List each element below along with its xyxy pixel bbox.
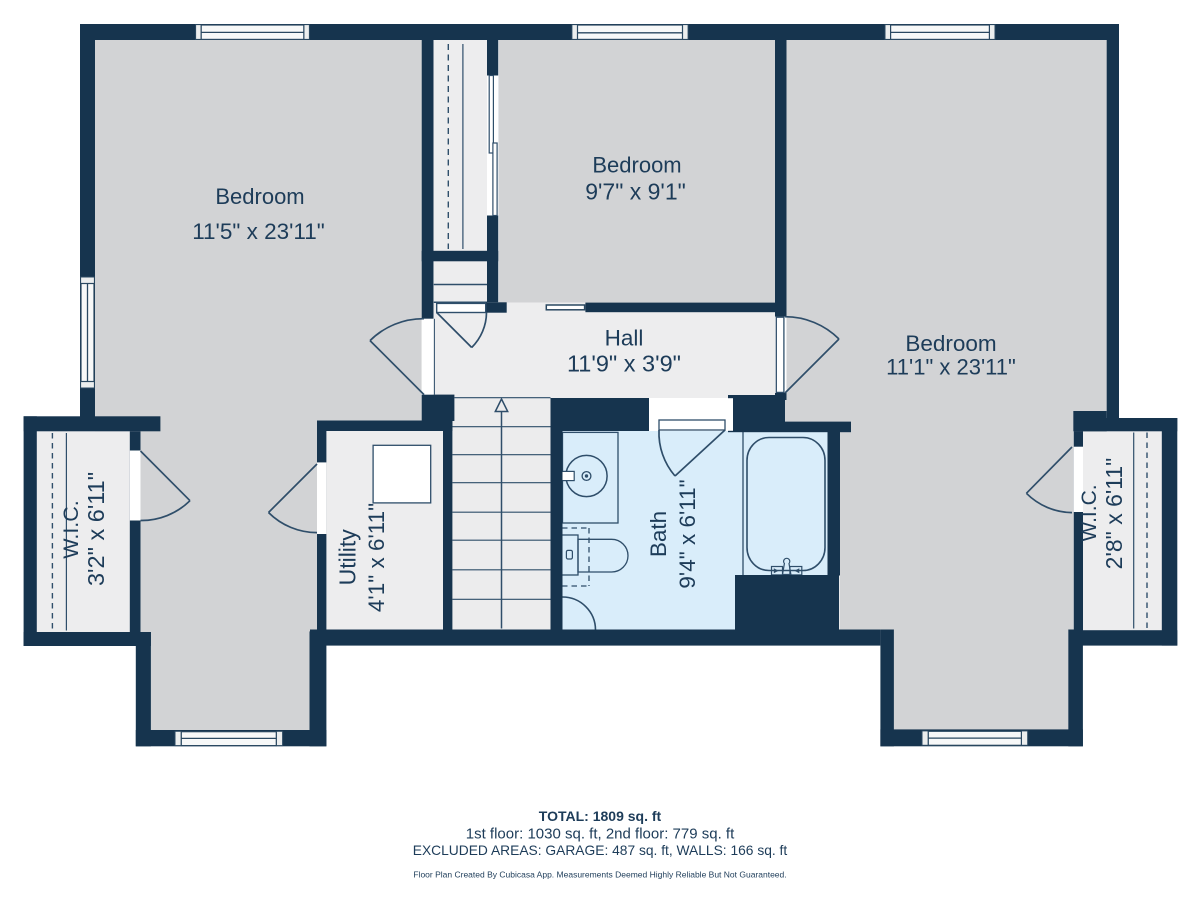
svg-text:3'2" x 6'11": 3'2" x 6'11" — [83, 472, 109, 586]
svg-text:1st floor: 1030 sq. ft, 2nd fl: 1st floor: 1030 sq. ft, 2nd floor: 779 s… — [466, 826, 735, 843]
svg-text:EXCLUDED AREAS: GARAGE: 487 sq: EXCLUDED AREAS: GARAGE: 487 sq. ft, WALL… — [413, 843, 788, 858]
svg-text:2'8" x 6'11": 2'8" x 6'11" — [1101, 458, 1127, 570]
svg-text:11'5" x 23'11": 11'5" x 23'11" — [192, 219, 325, 244]
svg-text:11'9" x 3'9": 11'9" x 3'9" — [567, 351, 681, 377]
svg-text:W.I.C.: W.I.C. — [1078, 484, 1101, 541]
svg-text:4'1" x 6'11": 4'1" x 6'11" — [364, 503, 389, 612]
svg-text:W.I.C.: W.I.C. — [59, 500, 83, 559]
svg-text:Bedroom: Bedroom — [905, 331, 996, 356]
svg-text:Hall: Hall — [605, 326, 644, 351]
svg-text:Floor Plan Created By Cubicasa: Floor Plan Created By Cubicasa App. Meas… — [413, 870, 786, 880]
svg-text:11'1" x 23'11": 11'1" x 23'11" — [886, 355, 1016, 380]
svg-text:Bath: Bath — [646, 511, 671, 557]
svg-text:Utility: Utility — [335, 529, 361, 586]
svg-text:9'7" x 9'1": 9'7" x 9'1" — [585, 179, 686, 205]
svg-text:Bedroom: Bedroom — [592, 153, 681, 178]
svg-text:TOTAL: 1809 sq. ft: TOTAL: 1809 sq. ft — [539, 808, 662, 824]
svg-text:Bedroom: Bedroom — [215, 184, 304, 209]
svg-text:9'4" x 6'11": 9'4" x 6'11" — [675, 479, 700, 588]
